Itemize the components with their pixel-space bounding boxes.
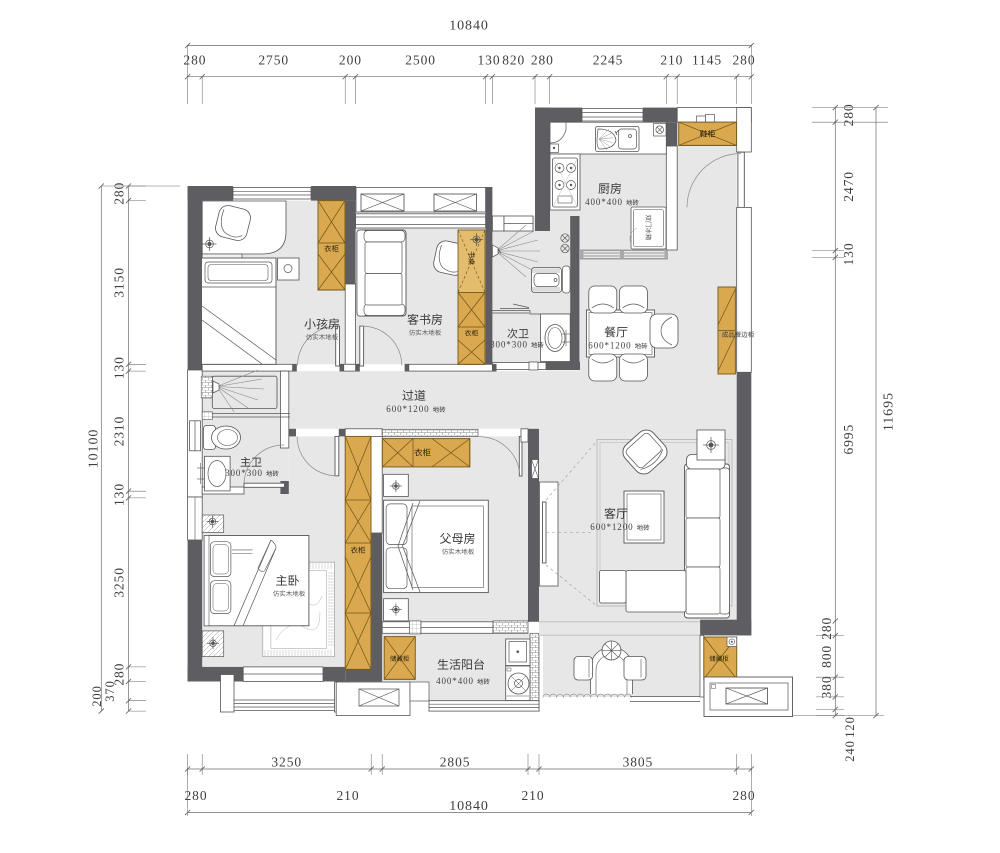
svg-text:200: 200 <box>339 53 362 68</box>
svg-text:280: 280 <box>733 788 756 803</box>
svg-text:1145: 1145 <box>692 53 722 68</box>
svg-text:2310: 2310 <box>112 416 127 447</box>
svg-text:800: 800 <box>819 645 834 668</box>
svg-text:10840: 10840 <box>449 18 489 33</box>
svg-text:280: 280 <box>841 103 856 126</box>
svg-text:600*1200: 600*1200 <box>386 404 429 414</box>
svg-text:3250: 3250 <box>112 567 127 598</box>
svg-text:280: 280 <box>112 182 127 205</box>
svg-text:210: 210 <box>337 788 360 803</box>
svg-text:210: 210 <box>660 53 683 68</box>
svg-text:240: 240 <box>843 740 857 761</box>
svg-text:820: 820 <box>502 53 525 68</box>
svg-text:370: 370 <box>103 680 117 701</box>
svg-text:6995: 6995 <box>841 424 856 455</box>
svg-text:280: 280 <box>185 788 208 803</box>
svg-text:600*1200: 600*1200 <box>588 340 631 350</box>
svg-text:3805: 3805 <box>623 755 654 770</box>
svg-text:210: 210 <box>522 788 545 803</box>
svg-text:200: 200 <box>90 685 104 706</box>
svg-text:280: 280 <box>531 53 554 68</box>
svg-text:280: 280 <box>183 53 206 68</box>
svg-text:3250: 3250 <box>271 755 302 770</box>
svg-text:280: 280 <box>733 53 756 68</box>
svg-text:130: 130 <box>112 483 127 506</box>
svg-text:2500: 2500 <box>405 53 436 68</box>
svg-text:130: 130 <box>112 356 127 379</box>
svg-text:11695: 11695 <box>881 392 896 431</box>
svg-text:2805: 2805 <box>440 755 471 770</box>
svg-text:2470: 2470 <box>841 171 856 202</box>
svg-text:300*300: 300*300 <box>225 468 263 478</box>
svg-text:400*400: 400*400 <box>436 676 474 686</box>
svg-text:380: 380 <box>819 676 834 699</box>
svg-text:2245: 2245 <box>593 53 624 68</box>
svg-text:120: 120 <box>843 716 857 737</box>
svg-text:10100: 10100 <box>86 429 101 469</box>
svg-text:10840: 10840 <box>449 799 489 814</box>
svg-text:3150: 3150 <box>112 267 127 298</box>
svg-text:280: 280 <box>819 617 834 640</box>
svg-text:130: 130 <box>841 243 856 266</box>
svg-text:300*300: 300*300 <box>490 339 528 349</box>
svg-text:130: 130 <box>478 53 501 68</box>
svg-text:600*1200: 600*1200 <box>590 522 633 532</box>
svg-text:400*400: 400*400 <box>585 197 623 207</box>
svg-text:2750: 2750 <box>258 53 289 68</box>
